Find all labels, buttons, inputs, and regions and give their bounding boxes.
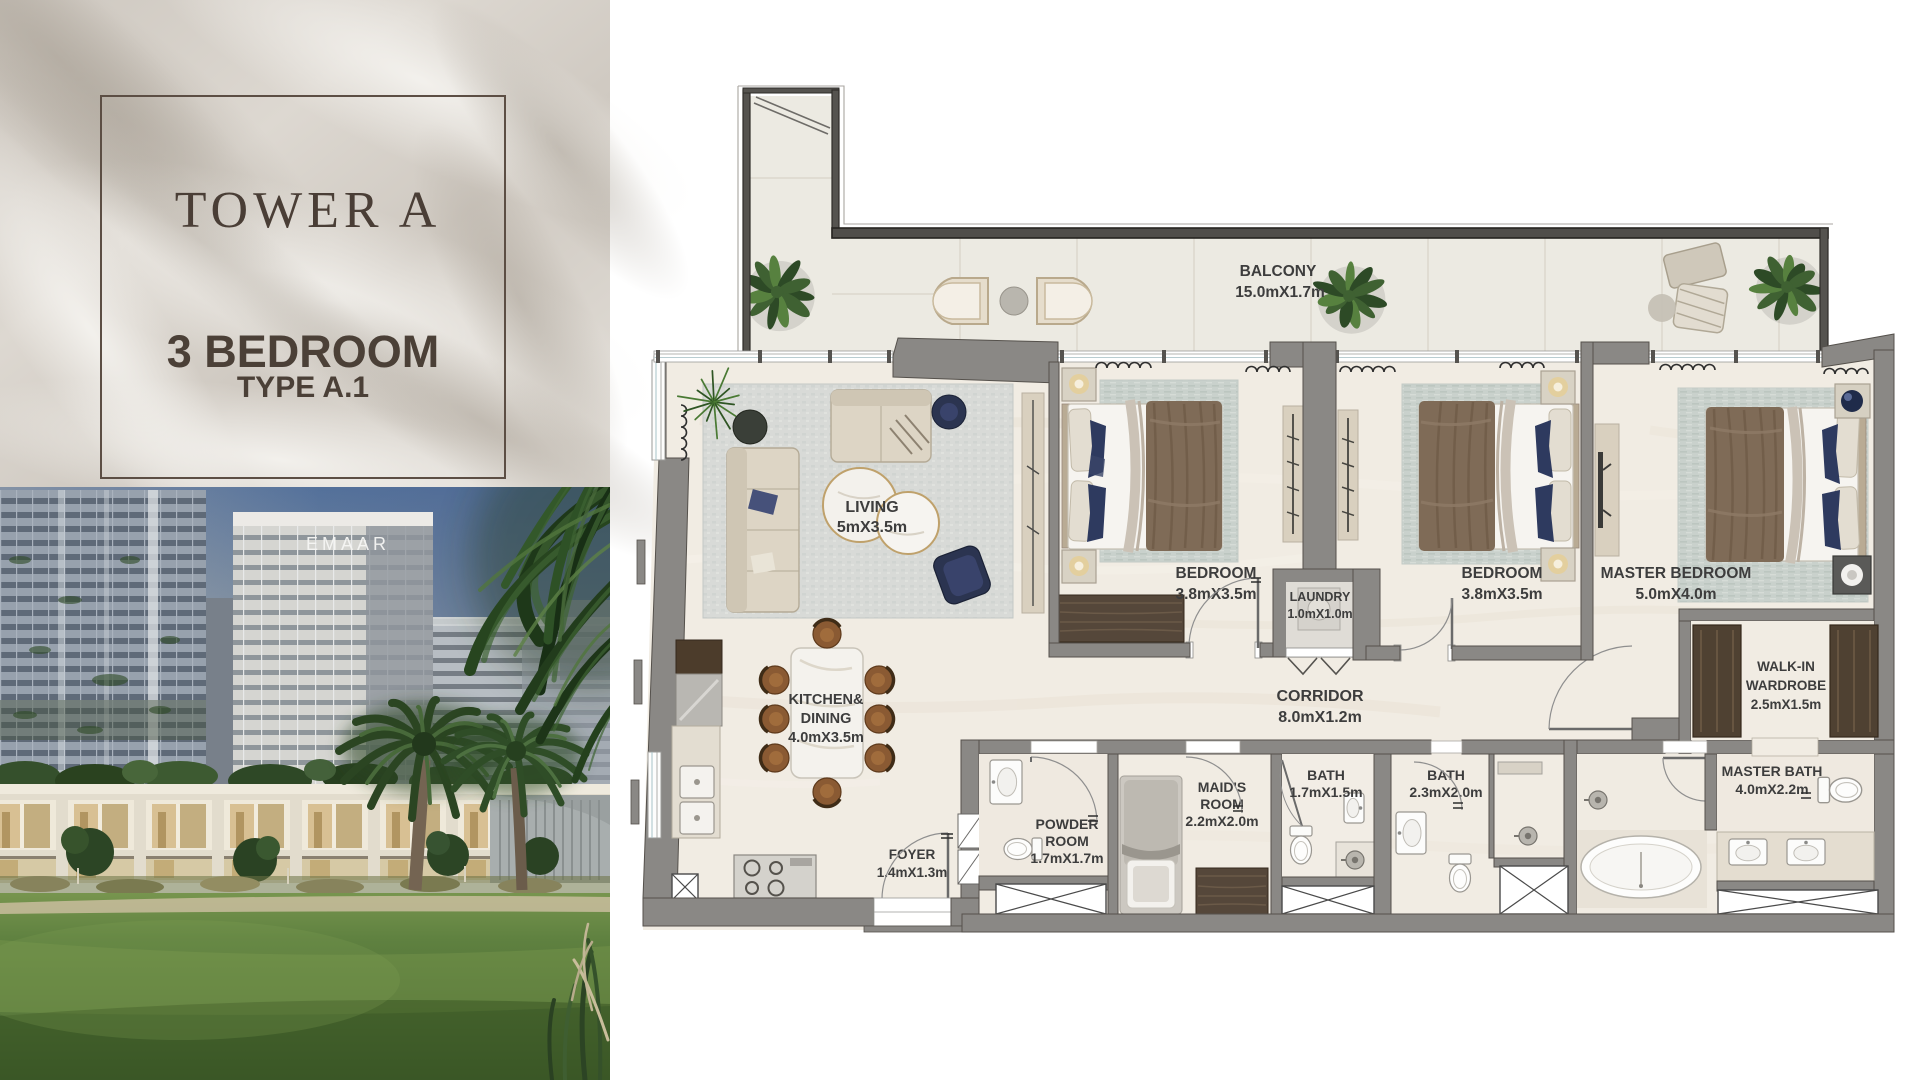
- svg-text:4.0mX3.5m: 4.0mX3.5m: [788, 730, 864, 746]
- svg-text:1.7mX1.5m: 1.7mX1.5m: [1289, 784, 1362, 800]
- svg-text:CORRIDOR: CORRIDOR: [1276, 688, 1364, 705]
- svg-text:4.0mX2.2m: 4.0mX2.2m: [1735, 781, 1808, 797]
- svg-text:DINING: DINING: [801, 711, 852, 727]
- svg-text:BALCONY: BALCONY: [1240, 263, 1317, 280]
- svg-text:LAUNDRY: LAUNDRY: [1290, 590, 1351, 604]
- svg-text:LIVING: LIVING: [845, 499, 898, 516]
- svg-text:EMAAR: EMAAR: [306, 534, 390, 554]
- svg-text:TYPE A.1: TYPE A.1: [237, 371, 369, 404]
- svg-text:FOYER: FOYER: [889, 847, 936, 862]
- svg-text:BATH: BATH: [1307, 767, 1345, 783]
- svg-text:1.7mX1.7m: 1.7mX1.7m: [1030, 850, 1103, 866]
- svg-text:3.8mX3.5m: 3.8mX3.5m: [1176, 586, 1257, 603]
- svg-text:KITCHEN&: KITCHEN&: [789, 692, 864, 708]
- svg-text:WARDROBE: WARDROBE: [1746, 678, 1826, 693]
- svg-text:BEDROOM: BEDROOM: [1462, 565, 1543, 582]
- svg-text:8.0mX1.2m: 8.0mX1.2m: [1278, 709, 1362, 726]
- svg-text:2.3mX2.0m: 2.3mX2.0m: [1409, 784, 1482, 800]
- svg-text:3 BEDROOM: 3 BEDROOM: [167, 326, 440, 377]
- svg-text:ROOM: ROOM: [1045, 833, 1089, 849]
- svg-text:15.0mX1.7m: 15.0mX1.7m: [1235, 284, 1325, 301]
- svg-text:5.0mX4.0m: 5.0mX4.0m: [1636, 586, 1717, 603]
- svg-text:2.2mX2.0m: 2.2mX2.0m: [1185, 813, 1258, 829]
- svg-text:1.0mX1.0m: 1.0mX1.0m: [1287, 607, 1352, 621]
- svg-text:TOWER A: TOWER A: [175, 182, 442, 239]
- svg-text:5mX3.5m: 5mX3.5m: [837, 519, 907, 536]
- svg-text:POWDER: POWDER: [1036, 816, 1099, 832]
- svg-text:2.5mX1.5m: 2.5mX1.5m: [1751, 697, 1822, 712]
- svg-text:3.8mX3.5m: 3.8mX3.5m: [1462, 586, 1543, 603]
- svg-text:MASTER BEDROOM: MASTER BEDROOM: [1601, 565, 1752, 582]
- svg-text:WALK-IN: WALK-IN: [1757, 659, 1815, 674]
- svg-text:ROOM: ROOM: [1200, 796, 1244, 812]
- svg-text:MASTER BATH: MASTER BATH: [1722, 763, 1823, 779]
